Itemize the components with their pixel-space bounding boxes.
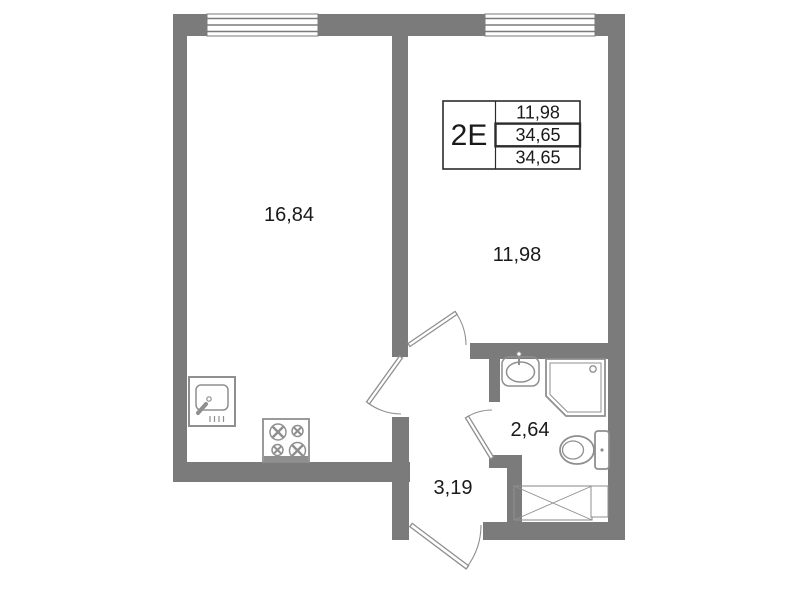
- unit-card-value-living: 11,98: [516, 103, 560, 123]
- floor-plan-page: 2E 11,98 34,65 34,65 16,84 11,98 2,64 3,…: [0, 0, 799, 600]
- sink-tap-dot: [207, 397, 211, 401]
- door-bedroom: [408, 311, 466, 346]
- appliance-placeholder: [514, 486, 608, 520]
- window-bedroom: [485, 14, 595, 36]
- label-living-kitchen-area: 16,84: [264, 204, 314, 226]
- wall-niche: [591, 486, 608, 517]
- wall-bottom: [483, 522, 625, 540]
- toilet-icon: [560, 431, 609, 469]
- shower-icon: [546, 359, 605, 416]
- wall-bathroom-left: [489, 357, 500, 402]
- toilet-bowl: [560, 436, 594, 464]
- wall-right: [608, 14, 625, 540]
- unit-type-label: 2E: [451, 119, 488, 152]
- sink-faucet: [198, 404, 206, 413]
- kitchen-sink-icon: [189, 377, 235, 426]
- label-bathroom-area: 2,64: [511, 419, 550, 441]
- wall-kitchen-bottom: [173, 462, 410, 482]
- door-leaf: [367, 356, 403, 404]
- wall-partition-upper: [392, 36, 408, 357]
- label-hallway-area: 3,19: [434, 477, 473, 499]
- door-swing-arc: [368, 403, 401, 414]
- window-living-kitchen: [207, 14, 318, 36]
- door-swing-arc: [467, 410, 492, 417]
- wall-partition-lower: [392, 417, 409, 540]
- wall-left: [173, 14, 187, 482]
- door-living-kitchen: [367, 356, 403, 414]
- door-leaf: [465, 416, 493, 459]
- door-leaf: [408, 311, 457, 346]
- door-entrance: [410, 523, 481, 569]
- washbasin-tap-dot: [517, 352, 521, 356]
- sink-basin: [196, 385, 228, 410]
- door-swing-arc: [456, 313, 466, 345]
- walls: [173, 14, 625, 540]
- floor-plan-drawing: 2E 11,98 34,65 34,65 16,84 11,98 2,64 3,…: [0, 0, 799, 600]
- shower-tray-inner: [550, 363, 601, 412]
- shower-drain: [590, 366, 596, 372]
- stove-icon: [263, 419, 309, 462]
- washbasin-bowl: [507, 362, 535, 382]
- door-swing-arc: [467, 525, 481, 567]
- label-bedroom-area: 11,98: [493, 244, 542, 266]
- unit-card-value-area: 34,65: [515, 125, 560, 145]
- door-leaf: [410, 523, 469, 569]
- toilet-tank-button: [600, 448, 603, 451]
- unit-info-card: 2E 11,98 34,65 34,65: [443, 101, 580, 169]
- wall-top-middle: [318, 14, 485, 36]
- wall-bedroom-bottom: [470, 343, 625, 359]
- door-bathroom: [465, 410, 493, 459]
- unit-card-value-total: 34,65: [515, 148, 560, 168]
